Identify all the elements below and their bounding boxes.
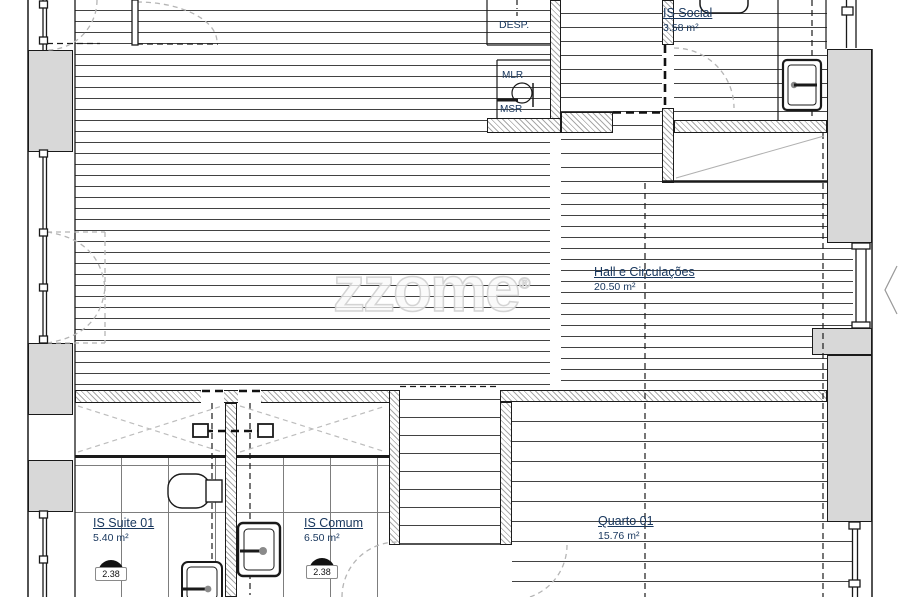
ceiling-height-marker-suite: 2.38 bbox=[95, 560, 129, 586]
swing-arc-lower bbox=[47, 288, 105, 343]
window-hall-right-cap-bottom bbox=[852, 322, 870, 328]
is-suite-name: IS Suite 01 bbox=[93, 516, 154, 530]
label-desp: DESP. bbox=[499, 19, 529, 31]
floor-plan: zzome® bbox=[0, 0, 900, 597]
toilet-is-suite-fixture bbox=[168, 474, 210, 508]
wall-lines bbox=[28, 0, 872, 597]
swing-arc-upper bbox=[47, 232, 105, 288]
edge-chevron-marker bbox=[885, 266, 897, 314]
door-swing-arcs bbox=[47, 0, 734, 597]
mlr-text: MLR bbox=[502, 70, 523, 81]
window-hinge-4 bbox=[40, 229, 48, 236]
shower-drain-suite-icon bbox=[193, 424, 208, 437]
is-social-area: 3.58 m² bbox=[663, 22, 712, 34]
quarto-name: Quarto 01 bbox=[598, 514, 654, 528]
is-comum-name: IS Comum bbox=[304, 516, 363, 530]
closet-diagonal-line bbox=[676, 136, 824, 178]
window-swing bbox=[47, 232, 105, 343]
height-value-suite: 2.38 bbox=[95, 567, 127, 581]
door-leaf-entry bbox=[132, 0, 138, 45]
door-opening-lines bbox=[202, 45, 665, 431]
toilet-is-suite-tank bbox=[206, 480, 222, 502]
room-label-is-comum: IS Comum 6.50 m² bbox=[304, 516, 363, 544]
room-label-is-social: IS Social 3.58 m² bbox=[663, 6, 712, 34]
ceiling-height-marker-comum: 2.38 bbox=[306, 558, 340, 584]
room-label-hall: Hall e Circulações 20.50 m² bbox=[594, 265, 695, 293]
room-label-quarto: Quarto 01 15.76 m² bbox=[598, 514, 654, 542]
window-hinge-8 bbox=[40, 556, 48, 563]
swing-is-comum bbox=[342, 542, 397, 597]
is-comum-area: 6.50 m² bbox=[304, 532, 363, 544]
is-suite-area: 5.40 m² bbox=[93, 532, 154, 544]
opening-thin-dashes bbox=[47, 44, 500, 387]
window-hinge-1 bbox=[40, 1, 48, 8]
window-top-right-hinge bbox=[842, 7, 853, 15]
height-value-comum: 2.38 bbox=[306, 565, 338, 579]
label-msr: MSR bbox=[500, 104, 522, 115]
is-social-name: IS Social bbox=[663, 6, 712, 20]
fixtures bbox=[168, 0, 821, 597]
label-mlr: MLR bbox=[502, 70, 523, 81]
swing-corner bbox=[47, 0, 97, 50]
window-quarto-cap-top bbox=[849, 522, 860, 529]
swing-quarto bbox=[512, 545, 567, 597]
swing-is-social bbox=[674, 48, 734, 108]
plan-linework bbox=[0, 0, 900, 597]
window-hinge-2 bbox=[40, 37, 48, 44]
hall-name: Hall e Circulações bbox=[594, 265, 695, 279]
shower-slope-lines bbox=[78, 406, 386, 452]
window-hall-right-cap-top bbox=[852, 243, 870, 249]
faucet-is-comum-icon bbox=[259, 547, 267, 555]
window-quarto-cap-bottom bbox=[849, 580, 860, 587]
quarto-area: 15.76 m² bbox=[598, 530, 654, 542]
faucet-is-suite-icon bbox=[205, 586, 212, 593]
room-label-is-suite: IS Suite 01 5.40 m² bbox=[93, 516, 154, 544]
windows bbox=[40, 0, 871, 597]
shower-drain-comum-icon bbox=[258, 424, 273, 437]
window-hinge-3 bbox=[40, 150, 48, 157]
window-hinge-7 bbox=[40, 511, 48, 518]
window-hinge-5 bbox=[40, 284, 48, 291]
swing-entry bbox=[137, 2, 217, 42]
sink-is-suite-basin bbox=[187, 567, 217, 597]
window-hinge-6 bbox=[40, 336, 48, 343]
msr-text: MSR bbox=[500, 104, 522, 115]
hall-area: 20.50 m² bbox=[594, 281, 695, 293]
desp-text: DESP. bbox=[499, 19, 529, 31]
